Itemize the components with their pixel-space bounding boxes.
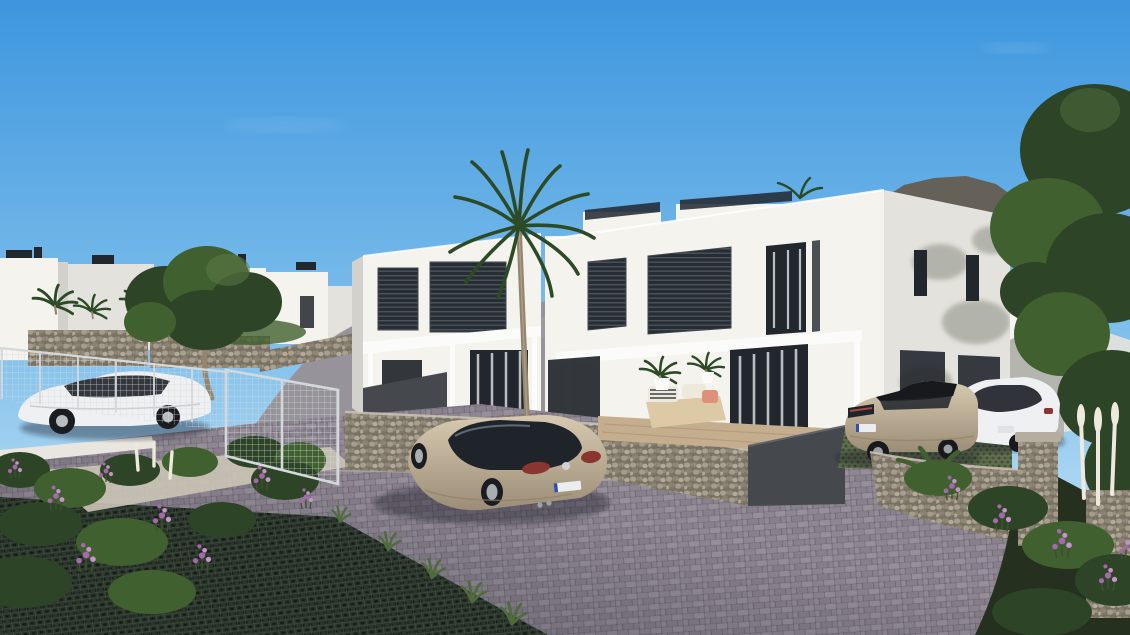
narrow-window <box>966 255 979 301</box>
bush <box>76 518 168 566</box>
bush <box>34 468 106 508</box>
pergola-post <box>532 334 537 414</box>
louvered-window <box>648 247 731 334</box>
tail-light <box>1044 408 1053 414</box>
left-villa <box>352 234 541 430</box>
louvered-window <box>588 258 626 330</box>
louvered-window <box>378 268 418 330</box>
canopy-highlight <box>1060 88 1120 132</box>
vw-badge <box>562 462 570 470</box>
roof-vent <box>92 255 114 264</box>
architectural-rendering <box>0 0 1130 635</box>
car-glass-roof <box>448 420 582 470</box>
bush <box>992 588 1092 635</box>
wheel-rim <box>56 415 68 427</box>
villa-side-wall <box>352 256 363 416</box>
wheel-rim <box>415 449 423 463</box>
scene-canvas <box>0 0 1130 635</box>
narrow-window <box>914 250 927 296</box>
wheel-rim <box>487 484 498 500</box>
upper-window-sliver <box>812 240 820 332</box>
plant-pot <box>654 378 670 390</box>
bush <box>0 502 82 546</box>
distant-window <box>300 296 314 328</box>
cloud-wisp <box>225 118 345 132</box>
plant-pot <box>701 372 714 383</box>
coral-cushion <box>702 390 718 403</box>
bush <box>108 570 196 614</box>
bush <box>188 502 256 538</box>
exhaust-tip <box>546 500 551 505</box>
pergola-post <box>450 342 455 414</box>
contrail-wisp <box>981 43 1049 53</box>
canopy-highlight <box>206 254 250 286</box>
pillar-cap <box>1015 432 1061 442</box>
pampas-plume <box>1077 404 1085 428</box>
bush <box>100 454 160 486</box>
license-plate <box>998 426 1014 433</box>
louvered-window <box>430 262 506 332</box>
plate-eu-strip <box>856 424 859 432</box>
pampas-plume <box>1094 407 1102 433</box>
wheel-rim <box>944 445 953 454</box>
exhaust-tip <box>537 502 542 507</box>
pampas-plume <box>1111 402 1119 426</box>
tree-canopy <box>124 302 176 342</box>
roof-vent <box>296 262 316 270</box>
